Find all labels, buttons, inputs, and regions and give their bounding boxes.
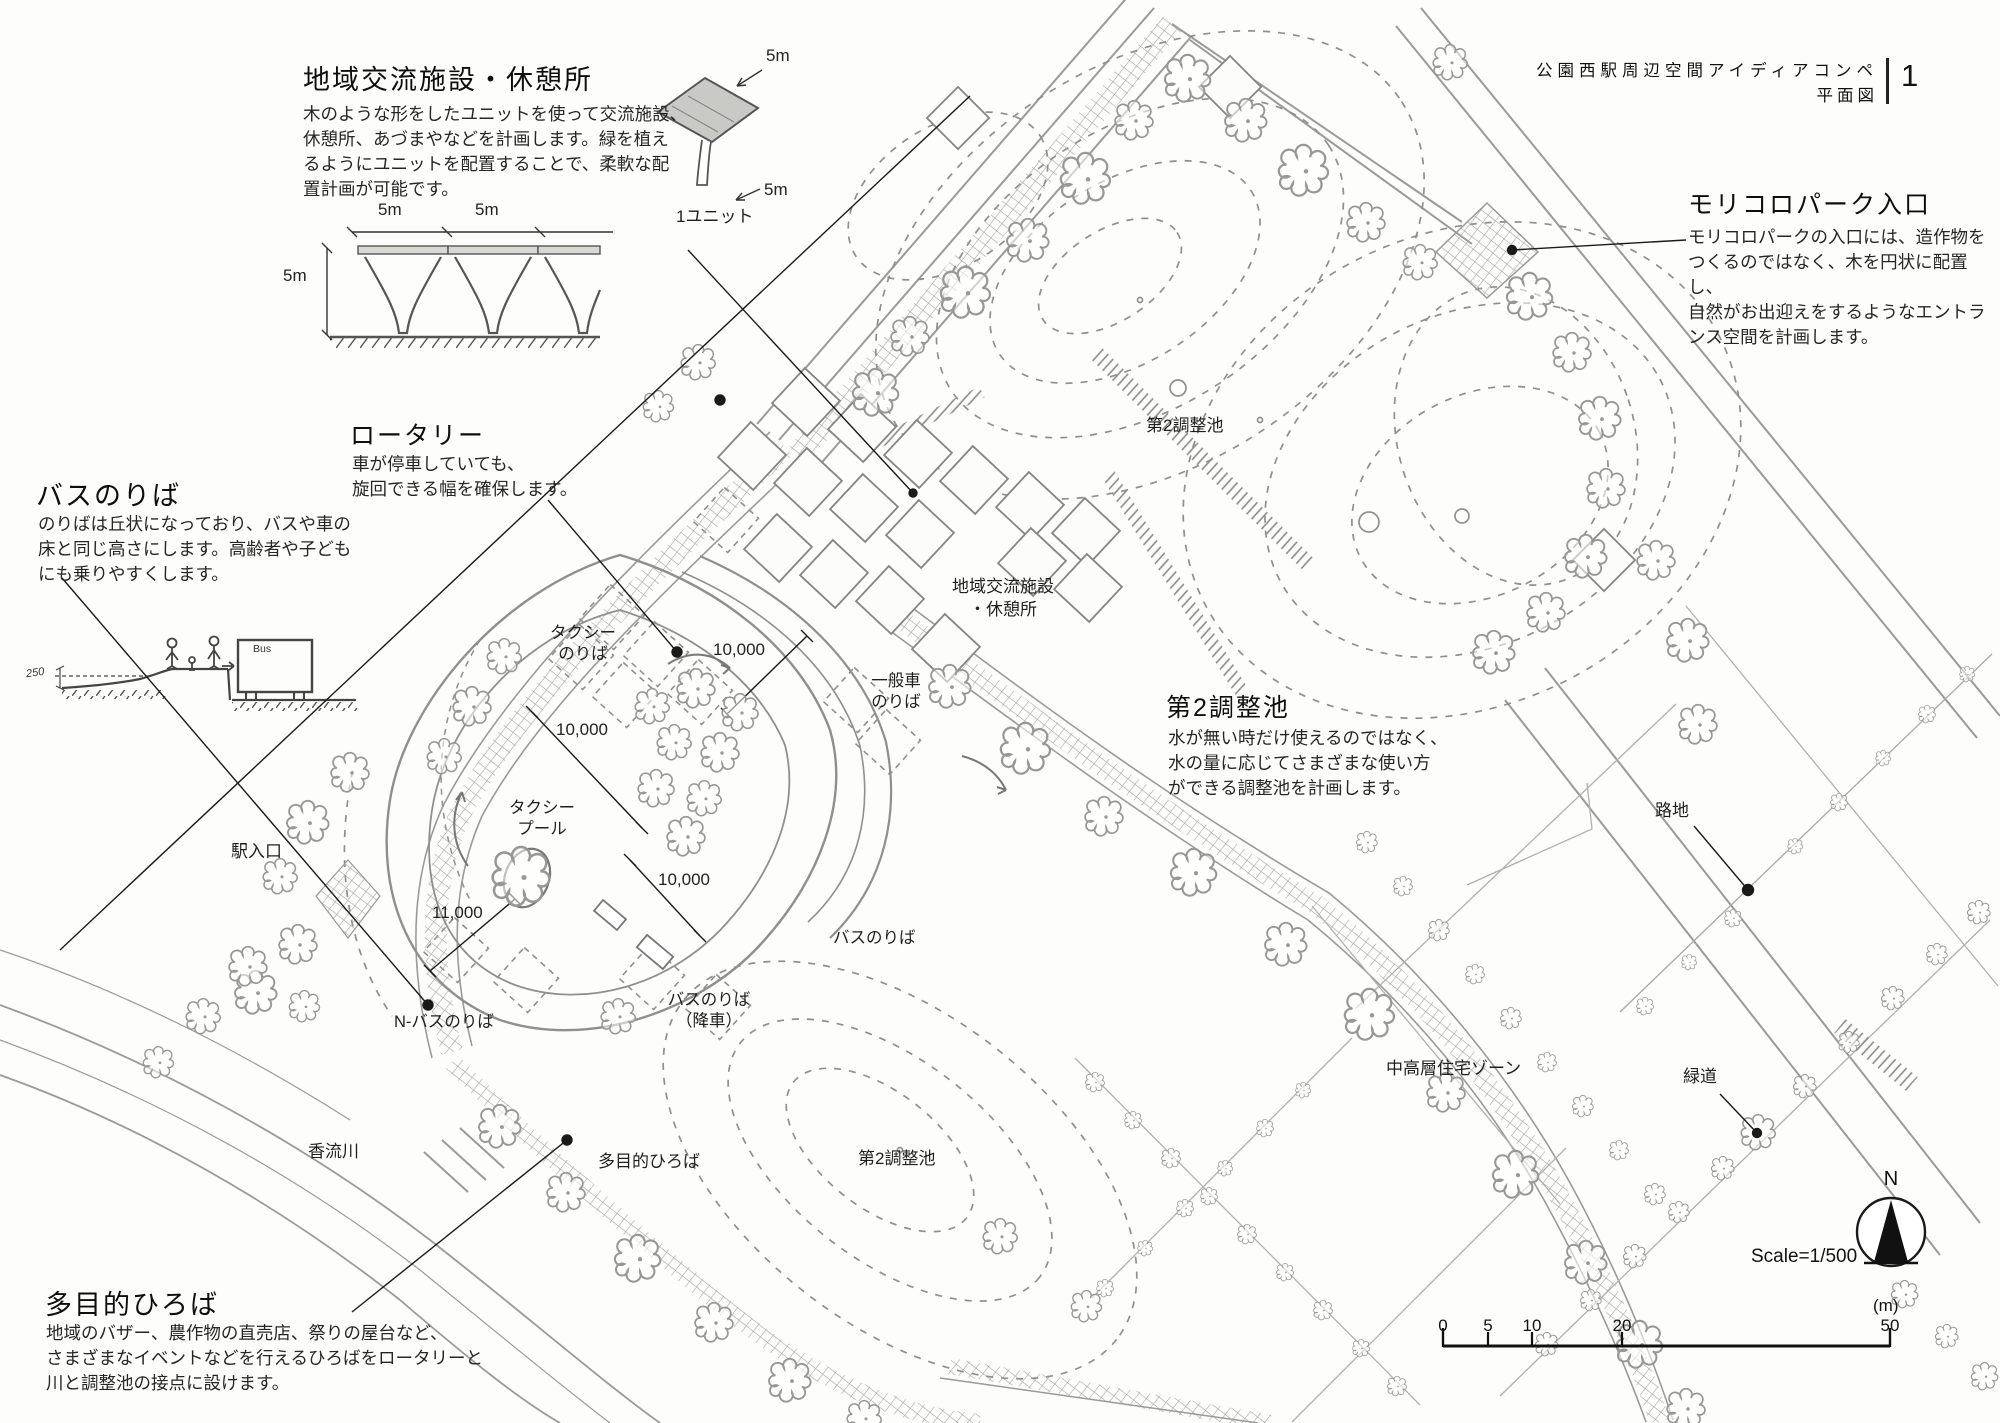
label-station-entrance: 駅入口 [231, 841, 282, 862]
platform-height-note: 250 [25, 666, 45, 680]
bus-stop-sketch [55, 637, 358, 712]
north-compass [1857, 1198, 1925, 1266]
page-number: 1 [1901, 58, 1918, 94]
scale-tick-20: 20 [1613, 1316, 1632, 1336]
label-pond-upper: 第2調整池 [1146, 415, 1223, 436]
section-plaza-body: 地域のバザー、農作物の直売店、祭りの屋台など、 さまざまなイベントなどを行えるひ… [46, 1321, 483, 1396]
label-multipurpose-plaza: 多目的ひろば [598, 1151, 700, 1172]
label-alley: 路地 [1655, 800, 1689, 821]
dim-10000-c: 10,000 [658, 870, 710, 890]
section-community-title: 地域交流施設・休憩所 [303, 58, 593, 97]
label-taxi-pool: タクシー プール [509, 798, 575, 840]
dim-axon-bottom: 5m [764, 180, 788, 200]
scale-unit: (m) [1873, 1296, 1898, 1316]
dim-span-b: 5m [475, 200, 499, 220]
label-pond-lower: 第2調整池 [858, 1148, 935, 1169]
section-bus-title: バスのりば [36, 474, 181, 513]
section-rotary-body: 車が停車していても、 旋回できる幅を確保します。 [352, 452, 577, 502]
dim-10000-b: 10,000 [556, 720, 608, 740]
dim-11000: 11,000 [432, 903, 483, 923]
scale-tick-0: 0 [1438, 1316, 1447, 1336]
label-residential-zone: 中高層住宅ゾーン [1386, 1058, 1521, 1079]
scale-tick-5: 5 [1483, 1316, 1492, 1336]
header-divider [1886, 58, 1889, 104]
sheet-title: 公園西駅周辺空間アイディアコンペ [1536, 57, 1878, 81]
label-community-facility: 地域交流施設 ・休憩所 [952, 575, 1054, 621]
site-plan-sheet: 公園西駅周辺空間アイディアコンペ 平面図 1 地域交流施設・休憩所 木のような形… [0, 0, 2000, 1423]
label-bus-stop-drop: バスのりば （降車） [668, 990, 751, 1032]
section-pond-body: 水が無い時だけ使えるのではなく、 水の量に応じてさまざまな使い方 ができる調整池… [1168, 726, 1447, 801]
label-n-bus-stop: N-バスのりば [394, 1012, 494, 1033]
section-community-body: 木のような形をしたユニットを使って交流施設、 休憩所、あづまやなどを計画します。… [303, 102, 687, 202]
section-rotary-title: ロータリー [350, 416, 485, 452]
label-greenway: 緑道 [1683, 1066, 1717, 1087]
dim-axon-top: 5m [766, 46, 790, 66]
section-bus-body: のりばは丘状になっており、バスや車の 床と同じ高さにします。高齢者や子ども にも… [38, 512, 351, 587]
sheet-subtitle: 平面図 [1817, 82, 1879, 106]
label-general-car-stop: 一般車 のりば [871, 671, 921, 713]
label-taxi-stop: タクシー のりば [550, 623, 616, 665]
section-moricoro-body: モリコロパークの入口には、造作物を つくるのではなく、木を円状に配置し、 自然が… [1688, 225, 2000, 350]
rotary [316, 488, 1006, 1040]
scale-tick-50: 50 [1881, 1316, 1900, 1336]
section-moricoro-title: モリコロパーク入口 [1688, 185, 1931, 221]
dim-height: 5m [283, 266, 307, 286]
section-plaza-title: 多目的ひろば [45, 1283, 219, 1322]
label-bus-stop: バスのりば [833, 928, 916, 949]
north-label: N [1884, 1168, 1898, 1191]
section-pond-title: 第2調整池 [1166, 688, 1290, 724]
scale-tick-10: 10 [1523, 1316, 1542, 1336]
unit-caption: 1ユニット [676, 206, 753, 227]
label-river: 香流川 [308, 1141, 359, 1162]
scale-bar [1443, 1328, 1890, 1347]
scale-text: Scale=1/500 [1751, 1246, 1857, 1268]
dim-span-a: 5m [378, 200, 402, 220]
dim-10000-a: 10,000 [713, 640, 765, 660]
bus-sign-label: Bus [253, 643, 271, 655]
